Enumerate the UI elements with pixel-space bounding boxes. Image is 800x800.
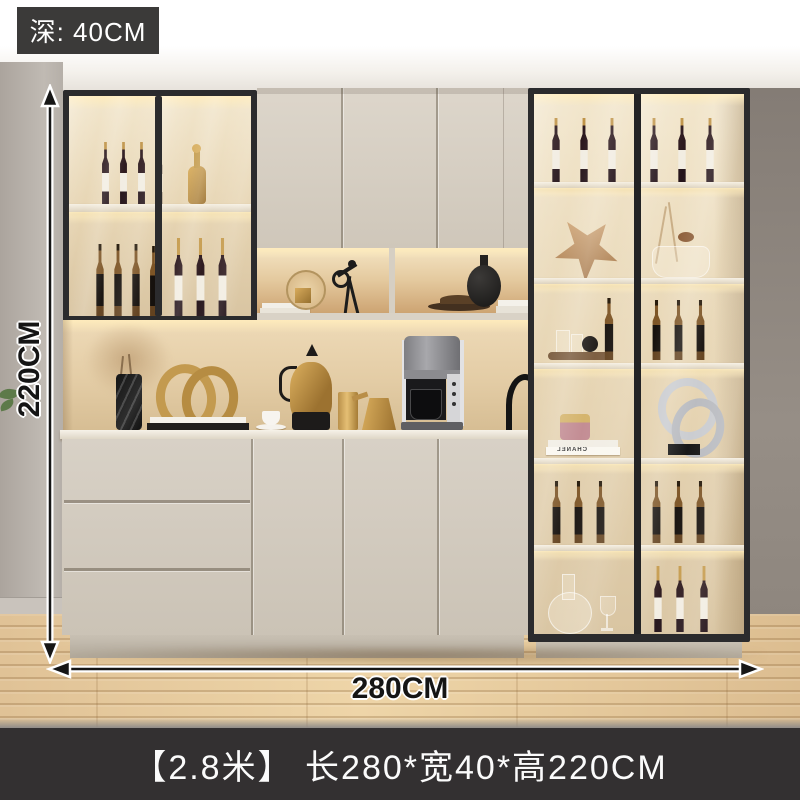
niche-divider: [389, 248, 395, 314]
decor-books: [147, 423, 249, 430]
depth-badge-label: 深: 40CM: [30, 12, 147, 49]
door-seam: [342, 439, 344, 635]
glass-door: [162, 96, 251, 316]
drawer-seam: [64, 568, 250, 571]
floor-fade: [0, 718, 800, 728]
glass-door: [534, 94, 634, 634]
control-dot: [452, 382, 456, 386]
door-seam: [251, 439, 253, 635]
glass-door: [69, 96, 155, 316]
lower-cabinet-body: [62, 439, 530, 635]
drawer-seam: [64, 500, 250, 503]
countertop: [60, 430, 532, 439]
coffee-carafe: [410, 389, 442, 420]
glass-door-divider: [634, 94, 641, 634]
right-wall: [748, 88, 800, 648]
gold-cube: [295, 288, 311, 303]
caption-text: 【2.8米】 长280*宽40*高220CM: [132, 740, 667, 789]
glass-door: [641, 94, 744, 634]
counter-side-shadow: [63, 320, 73, 432]
caption-bar: 【2.8米】 长280*宽40*高220CM: [0, 728, 800, 800]
kettle-base: [292, 412, 330, 430]
control-dot: [452, 392, 456, 396]
black-vase: [467, 265, 501, 307]
product-photo: CHANEL 深: 40CM 220CM 280CM: [0, 0, 800, 800]
door-top-shadow: [257, 88, 530, 94]
upper-cabinet-doors: [257, 88, 530, 248]
coffee-cup: [262, 411, 280, 425]
height-dimension-label: 220CM: [13, 314, 45, 424]
marble-vase: [116, 374, 142, 430]
glass-door-divider: [155, 96, 162, 316]
door-seam: [437, 439, 439, 635]
door-seam: [341, 88, 343, 248]
width-dimension-label: 280CM: [330, 672, 470, 706]
coffee-machine-base: [401, 422, 463, 430]
depth-badge: 深: 40CM: [17, 7, 159, 54]
door-seam: [436, 88, 438, 248]
decor-books: [496, 306, 528, 313]
control-dot: [452, 402, 456, 406]
door-seam: [503, 88, 504, 248]
coffee-machine-frame: [460, 340, 464, 426]
coffee-machine-top: [404, 336, 460, 370]
